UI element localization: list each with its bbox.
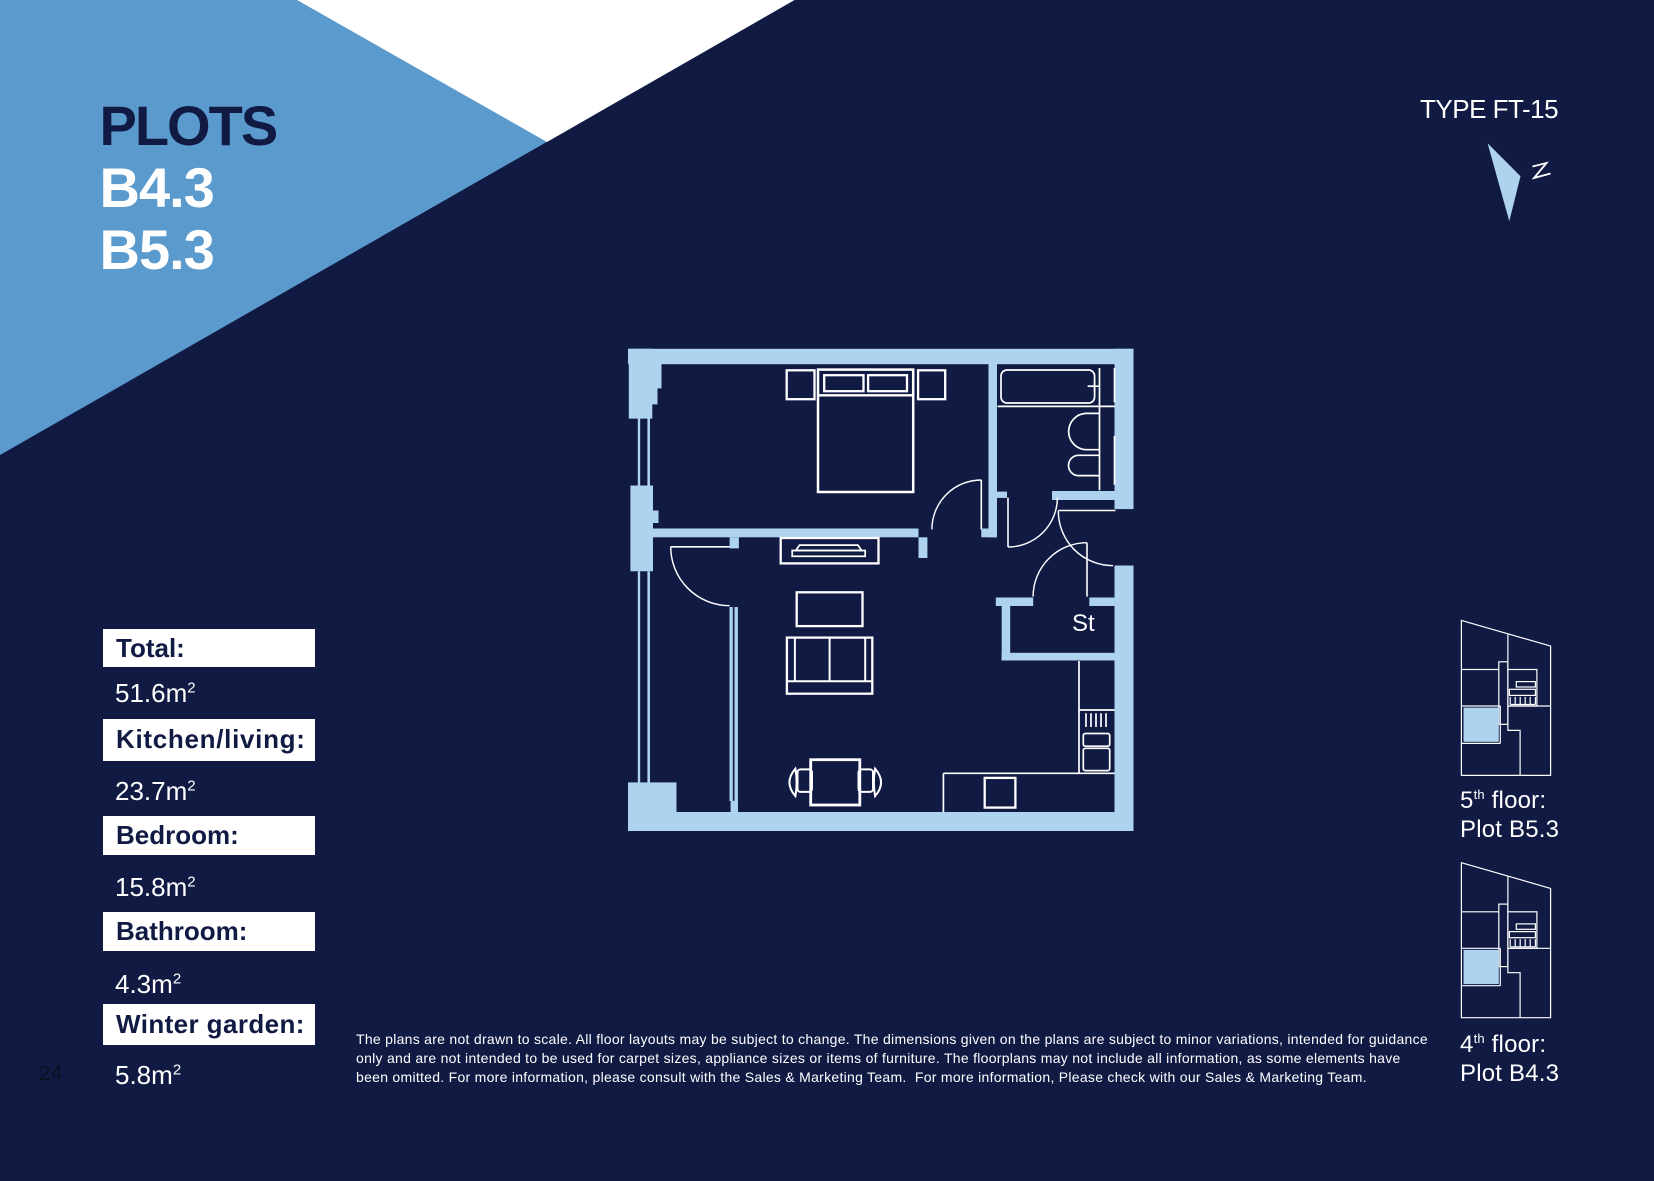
svg-text:St: St [1072, 610, 1095, 637]
